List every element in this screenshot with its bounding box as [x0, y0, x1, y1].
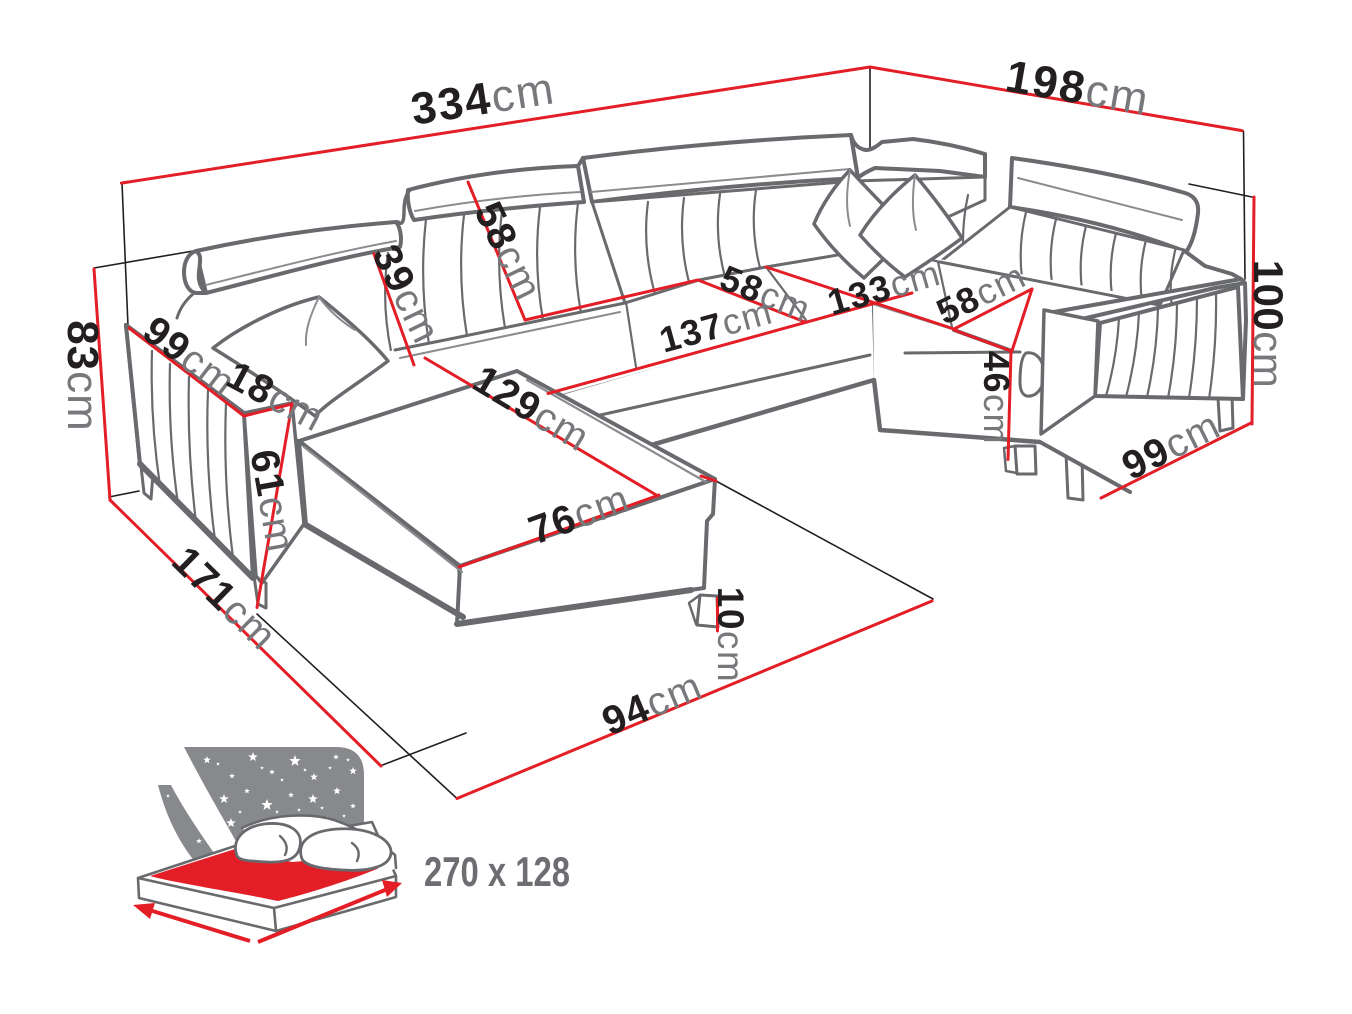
svg-text:10cm: 10cm	[710, 587, 751, 683]
svg-text:46cm: 46cm	[976, 351, 1017, 445]
svg-text:83cm: 83cm	[58, 320, 107, 432]
svg-text:270 x 128: 270 x 128	[424, 848, 570, 895]
svg-text:100cm: 100cm	[1245, 260, 1292, 389]
